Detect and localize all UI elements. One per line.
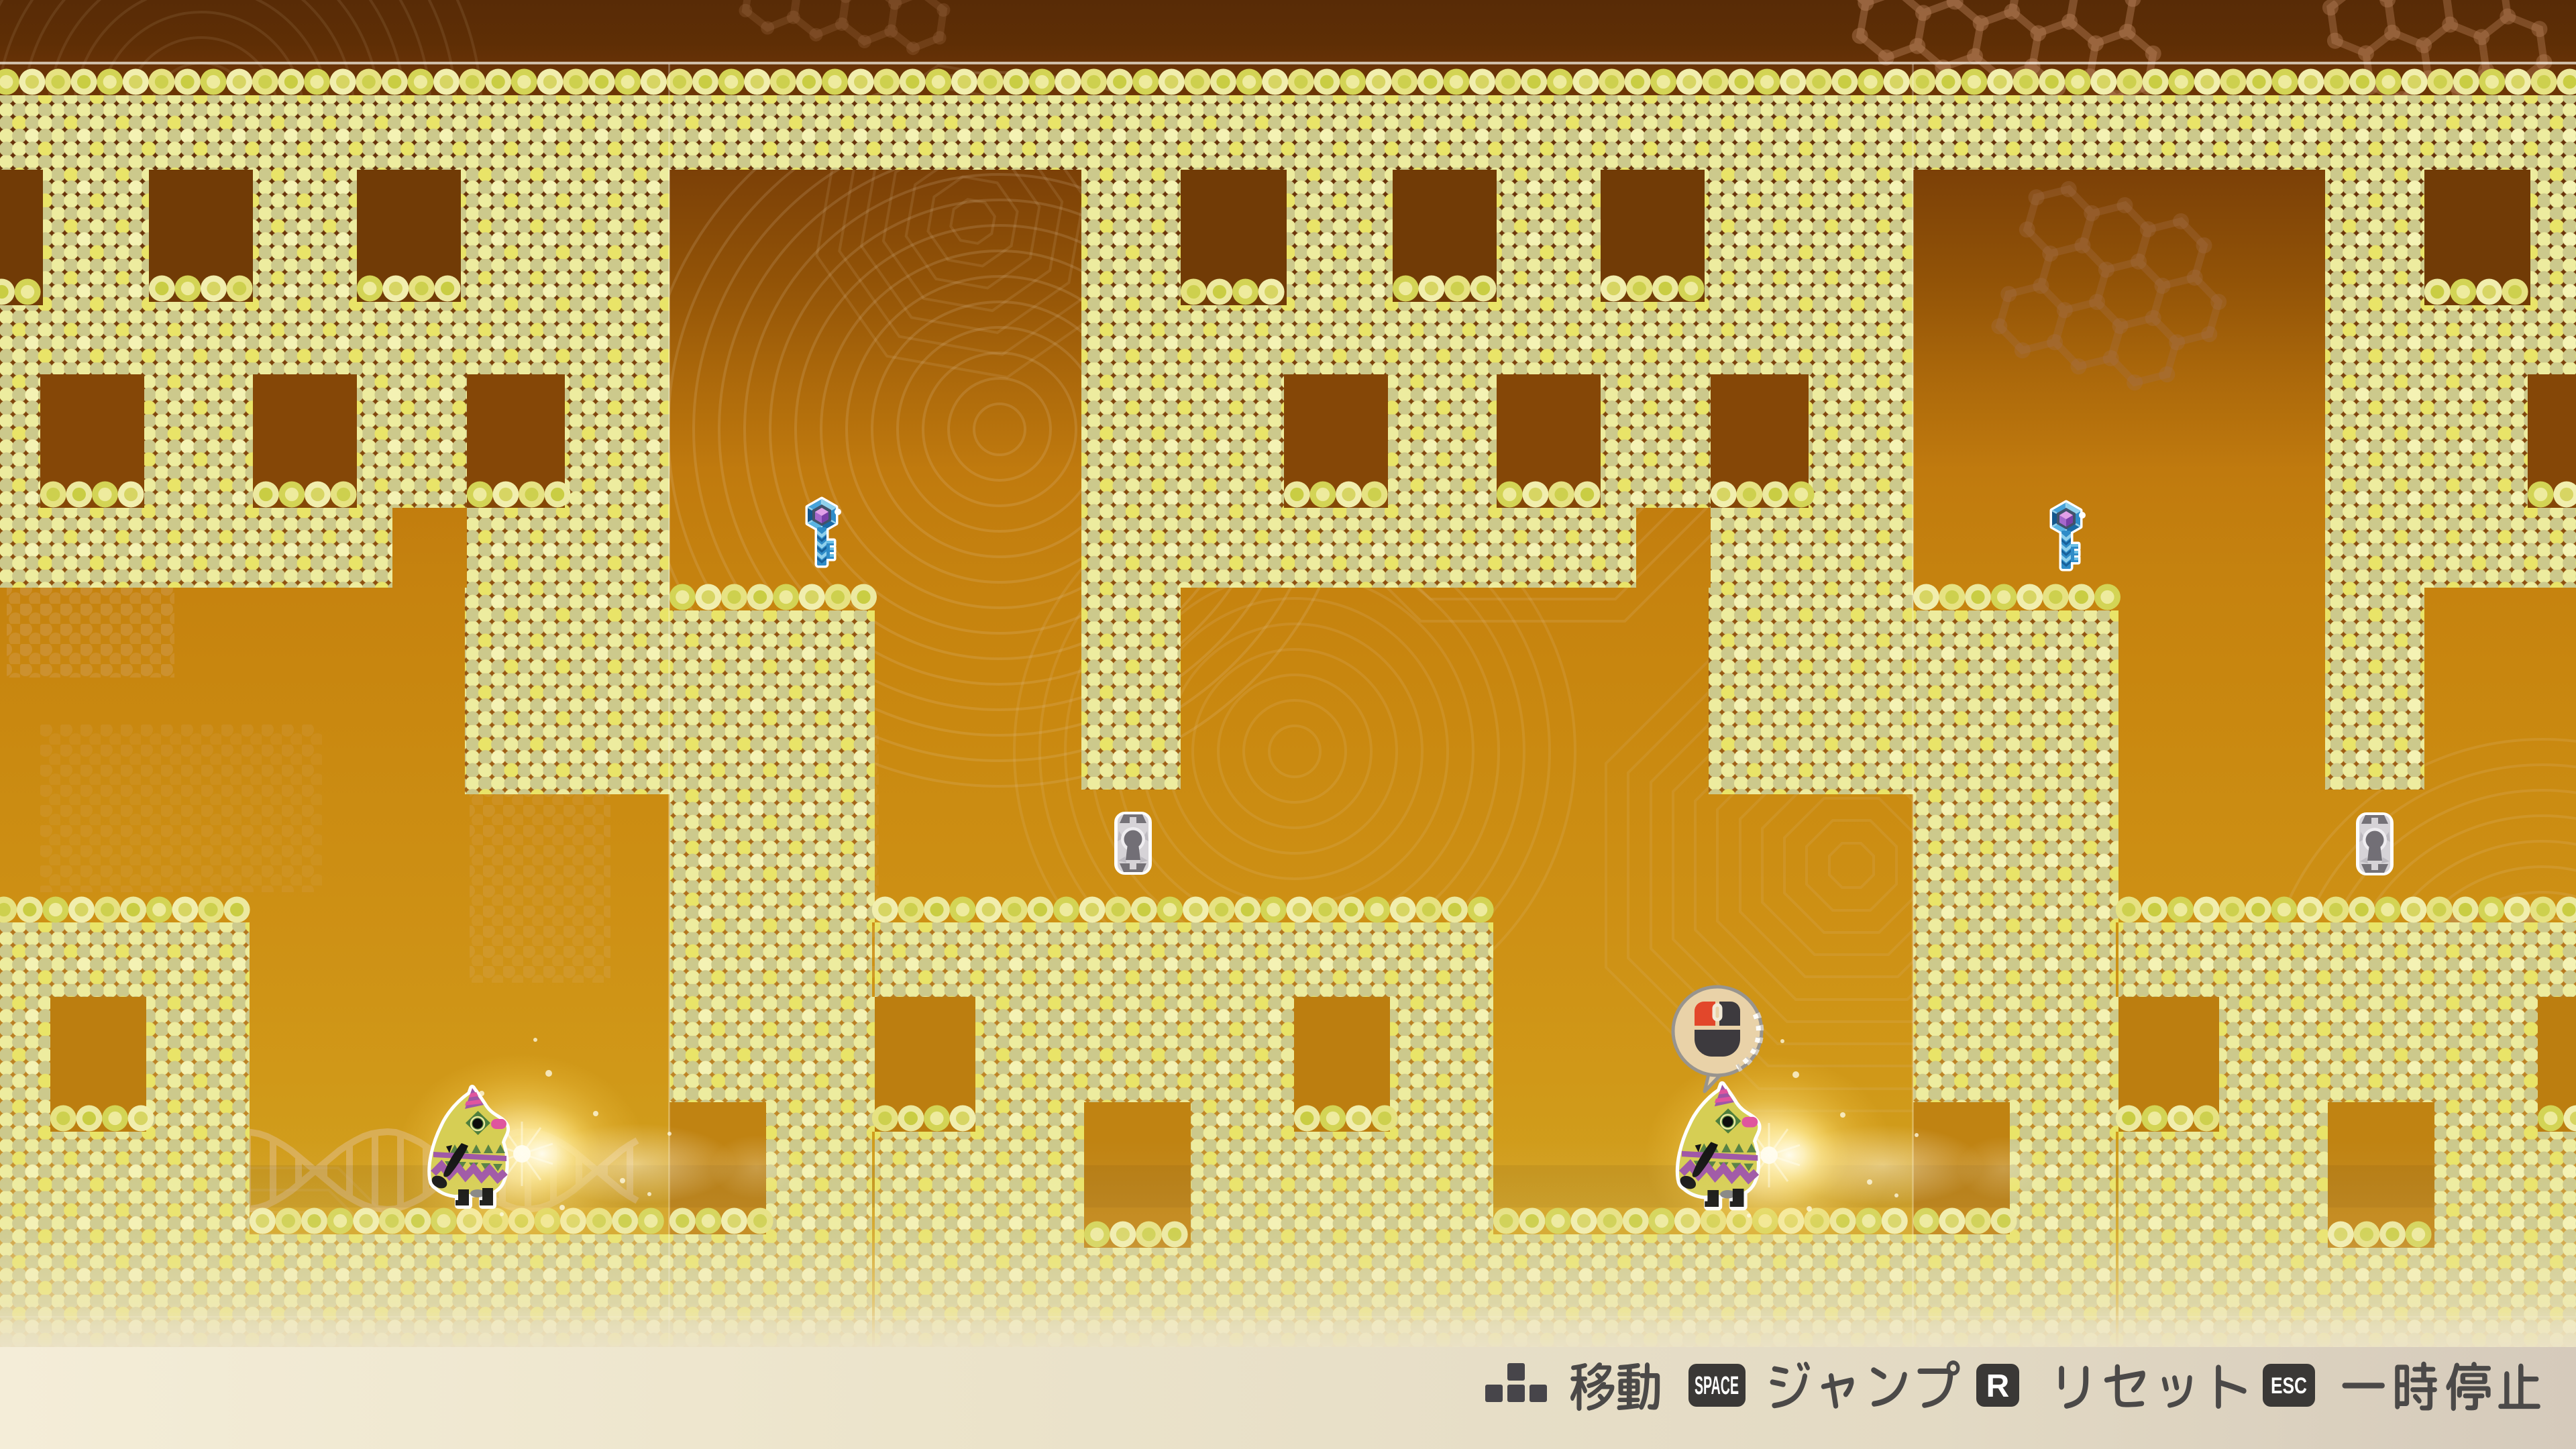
- svg-text:R: R: [1986, 1368, 2010, 1404]
- svg-text:ESC: ESC: [2271, 1373, 2307, 1399]
- svg-text:SPACE: SPACE: [1695, 1372, 1739, 1400]
